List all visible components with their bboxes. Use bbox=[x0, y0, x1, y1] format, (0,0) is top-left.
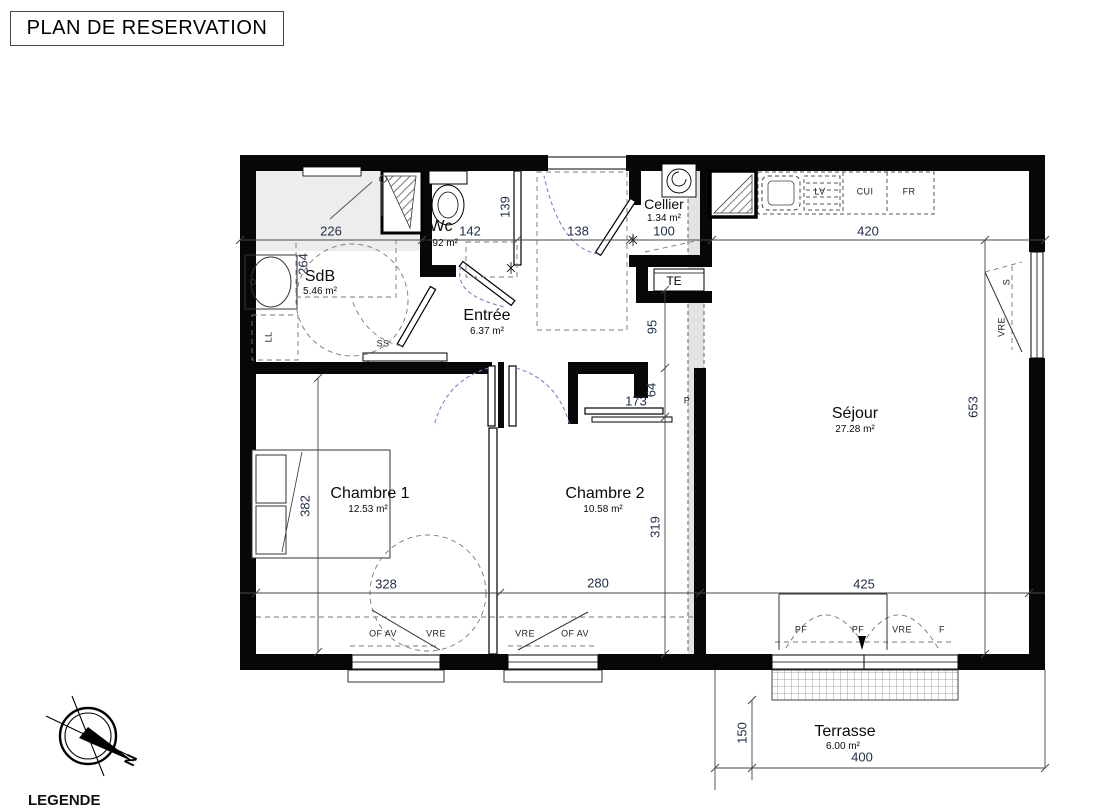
room-label-wc: Wc bbox=[429, 219, 452, 235]
post-label: P bbox=[684, 397, 690, 406]
ch2-window-type-label: OF AV bbox=[561, 630, 589, 639]
dim-entree-door: 138 bbox=[567, 225, 589, 238]
dishwasher-label: LV bbox=[814, 188, 825, 197]
dim-wc-width: 142 bbox=[459, 225, 481, 238]
cooker-label: CUI bbox=[857, 188, 874, 197]
legend-heading: LEGENDE bbox=[28, 792, 101, 809]
floor-plan: PLAN DE RESERVATION LEGENDE N SdB 5.46 m… bbox=[0, 0, 1099, 800]
ch1-shutter-label: VRE bbox=[426, 630, 446, 639]
dim-chambre2-door: 173 bbox=[625, 395, 647, 408]
dim-sdb-height: 264 bbox=[297, 253, 310, 275]
water-heater-icon bbox=[662, 164, 696, 197]
right-window-shutter-label: VRE bbox=[998, 317, 1007, 337]
plan-title: PLAN DE RESERVATION bbox=[10, 11, 284, 46]
right-window-s-label: S bbox=[1003, 279, 1012, 285]
washer-space bbox=[252, 315, 298, 360]
entrance-threshold bbox=[544, 155, 630, 171]
towel-radiator-label: SS bbox=[377, 340, 390, 349]
dim-bed-height: 382 bbox=[299, 495, 312, 517]
kitchen-sink-icon bbox=[762, 176, 800, 210]
duct-bathroom-icon bbox=[382, 171, 422, 233]
room-label-cellier: Cellier bbox=[644, 197, 684, 211]
window-chambre1 bbox=[348, 655, 444, 682]
room-label-entree: Entrée bbox=[463, 308, 510, 324]
fixed-pane-label: F bbox=[939, 626, 945, 635]
room-area-wc: 1.92 m² bbox=[424, 239, 458, 249]
chambre2-sliding-door bbox=[585, 408, 672, 422]
dim-hall-height: 95 bbox=[646, 320, 659, 334]
dim-sejour-height: 653 bbox=[967, 396, 980, 418]
dim-terrasse-width: 400 bbox=[851, 751, 873, 764]
electrical-panel-label: TE bbox=[666, 275, 681, 287]
room-area-cellier: 1.34 m² bbox=[647, 214, 681, 224]
room-label-sejour: Séjour bbox=[832, 406, 878, 422]
dim-wc-height: 139 bbox=[499, 196, 512, 218]
window-sejour-right bbox=[1031, 252, 1043, 358]
toilet-icon bbox=[429, 171, 467, 225]
entrance-door bbox=[544, 176, 636, 255]
room-area-sdb: 5.46 m² bbox=[303, 287, 337, 297]
room-label-chambre2: Chambre 2 bbox=[565, 486, 644, 502]
fridge-label: FR bbox=[903, 188, 916, 197]
french-door-right-label: PF bbox=[852, 626, 864, 635]
terrace-deck bbox=[772, 670, 958, 700]
closet-space bbox=[537, 172, 627, 330]
duct-kitchen-icon bbox=[710, 171, 756, 217]
dim-sdb-width: 226 bbox=[320, 225, 342, 238]
dim-terrasse-height: 150 bbox=[736, 722, 749, 744]
room-area-entree: 6.37 m² bbox=[470, 327, 504, 337]
room-area-chambre1: 12.53 m² bbox=[348, 505, 387, 515]
dim-kitchen-width: 420 bbox=[857, 225, 879, 238]
french-door-left-label: PF bbox=[795, 626, 807, 635]
dim-sejour-width: 425 bbox=[853, 578, 875, 591]
room-area-chambre2: 10.58 m² bbox=[583, 505, 622, 515]
plan-drawing bbox=[0, 0, 1099, 800]
wc-door bbox=[459, 261, 515, 307]
washer-label: LL bbox=[265, 332, 274, 343]
ch2-shutter-label: VRE bbox=[515, 630, 535, 639]
room-area-sejour: 27.28 m² bbox=[835, 425, 874, 435]
ch1-window-type-label: OF AV bbox=[369, 630, 397, 639]
room-label-chambre1: Chambre 1 bbox=[330, 486, 409, 502]
dim-chambre1-width: 328 bbox=[375, 578, 397, 591]
dim-cellier-width: 100 bbox=[653, 225, 675, 238]
window-chambre2 bbox=[504, 655, 602, 682]
dim-chambre2-height: 319 bbox=[649, 516, 662, 538]
sejour-shutter-label: VRE bbox=[892, 626, 912, 635]
room-label-terrasse: Terrasse bbox=[814, 724, 875, 740]
turning-circle-sdb bbox=[296, 244, 408, 356]
window-sejour-terrace bbox=[772, 655, 958, 669]
compass-icon bbox=[46, 696, 134, 776]
dim-chambre2-width: 280 bbox=[587, 577, 609, 590]
